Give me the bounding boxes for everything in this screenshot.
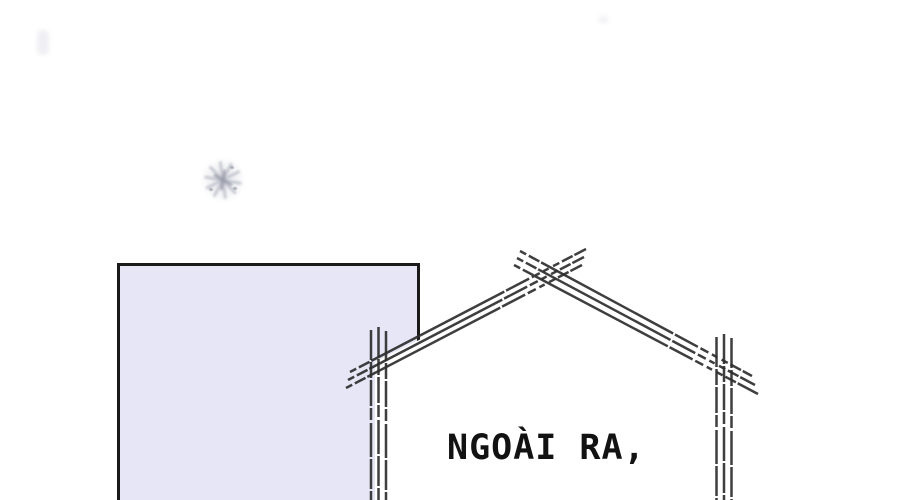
comic-panel: NGOÀI RA, <box>0 0 900 500</box>
caption-text: NGOÀI RA, <box>447 429 646 467</box>
house-outline <box>0 0 900 500</box>
